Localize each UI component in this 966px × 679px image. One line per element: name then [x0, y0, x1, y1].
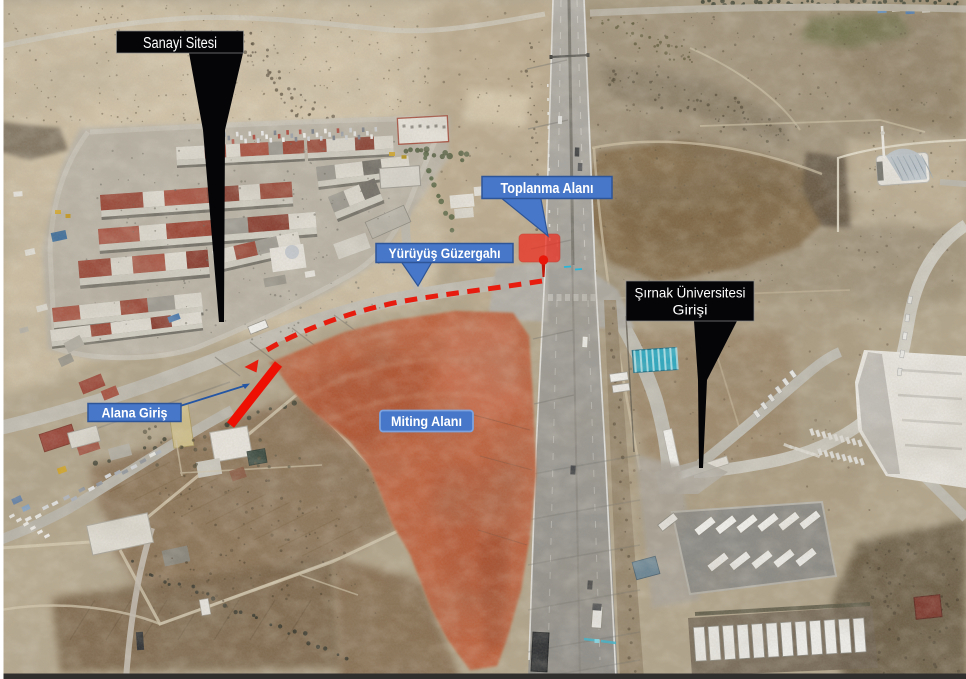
svg-text:Miting Alanı: Miting Alanı [391, 413, 462, 429]
svg-text:Şırnak Üniversitesi: Şırnak Üniversitesi [635, 284, 746, 301]
svg-text:Yürüyüş Güzergahı: Yürüyüş Güzergahı [389, 245, 501, 261]
svg-text:Toplanma Alanı: Toplanma Alanı [501, 180, 594, 197]
svg-text:Alana Giriş: Alana Giriş [102, 406, 168, 421]
svg-text:Sanayi Sitesi: Sanayi Sitesi [143, 35, 217, 52]
svg-text:Girişi: Girişi [673, 302, 708, 318]
